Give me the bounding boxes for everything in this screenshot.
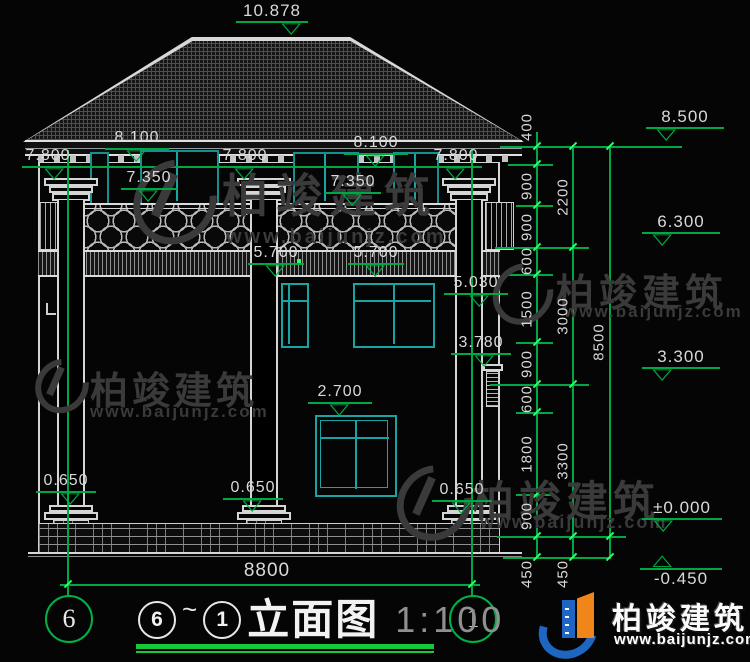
brand-url: www.baijunjz.com: [614, 631, 750, 648]
title-underline: [136, 644, 434, 649]
level-down-icon: ▽: [322, 155, 431, 166]
level-down-icon: ▽: [441, 355, 529, 366]
dim-label: 7.350: [121, 169, 177, 186]
column-shaft: [57, 200, 85, 505]
side-railing: [485, 202, 514, 250]
level-down-icon: ▽: [305, 194, 400, 205]
dim-label: 1800: [519, 435, 536, 472]
dim-label: 8.100: [105, 129, 169, 146]
level-down-icon: ▽: [286, 404, 395, 415]
dim-label: 2200: [555, 178, 572, 215]
title-circle-6: 6: [138, 601, 176, 639]
dim-label: 400: [519, 113, 536, 141]
level-down-icon: ▽: [202, 500, 304, 511]
column-base: [44, 512, 98, 520]
dim-label: 3.780: [451, 334, 511, 351]
watermark-url-text: www.baijunjz.com: [90, 402, 269, 422]
dim-label: 0.650: [432, 481, 492, 498]
brand-logo-icon: [536, 590, 612, 660]
wall-bracket: [46, 303, 56, 315]
ground-line: [28, 552, 522, 554]
dim-label: 2.700: [308, 383, 372, 400]
level-down-icon: ▽: [265, 23, 319, 34]
louver-vent: [486, 371, 499, 407]
level-down-icon: ▽: [566, 369, 750, 380]
dim-label: 600: [519, 385, 536, 413]
window-transom: [283, 300, 307, 302]
dim-label: 10.878: [236, 2, 308, 19]
dim-label: 5.030: [444, 274, 508, 291]
brand-building-blue: [562, 600, 575, 638]
level-down-icon: ▽: [201, 168, 289, 179]
dim-label: 900: [519, 350, 536, 378]
level-down-icon: ▽: [83, 150, 192, 161]
window-inner-frame: [320, 420, 388, 488]
ground-line-2: [28, 556, 522, 557]
roof-tile-hatch: [27, 40, 520, 140]
dim-line-bottom: [60, 584, 480, 586]
dim-label: ±0.000: [642, 499, 722, 516]
dim-label: 8.500: [646, 108, 724, 125]
dim-label: 1500: [519, 290, 536, 327]
axis-line-1: [471, 150, 473, 597]
dim-label: 900: [519, 172, 536, 200]
dim-label: -0.450: [640, 570, 722, 587]
drawing-scale: 1:100: [395, 599, 505, 641]
dim-label: 7.800: [22, 147, 74, 164]
axis-number: 6: [63, 604, 76, 634]
dim-label: 8800: [227, 560, 307, 582]
window-mullion: [355, 420, 357, 489]
dim-label: 8.100: [344, 134, 408, 151]
side-railing: [39, 202, 59, 250]
dim-label: 3000: [555, 297, 572, 334]
dim-label: 3300: [555, 442, 572, 479]
dim-label: 450: [519, 560, 536, 588]
dim-tick-line: [500, 146, 682, 148]
drawing-title: 立面图: [247, 597, 379, 643]
axis-bubble-6: 6: [45, 595, 93, 643]
window-mullion: [288, 285, 290, 344]
level-down-icon: ▽: [432, 295, 527, 306]
dim-label: 6.300: [642, 213, 720, 230]
dim-label: 900: [519, 213, 536, 241]
dim-label: 5.700: [248, 244, 304, 261]
dim-label: 600: [519, 247, 536, 275]
dim-label: 7.800: [219, 147, 271, 164]
elevation-drawing-canvas: 柏竣建筑 www.baijunjz.com 柏竣建筑 www.baijunjz.…: [0, 0, 750, 662]
dim-label: 450: [555, 560, 572, 588]
dim-label: 8500: [591, 323, 608, 360]
window-mullion: [393, 285, 395, 344]
dim-label: 7.800: [430, 147, 482, 164]
level-down-icon: ▽: [29, 493, 114, 504]
level-down-icon: ▽: [411, 502, 513, 513]
column-capital: [447, 186, 491, 193]
title-underline-thin: [136, 651, 434, 653]
level-down-icon: ▽: [101, 190, 196, 201]
tilde-symbol: ~: [182, 594, 197, 625]
title-circle-1: 1: [203, 601, 241, 639]
level-up-icon: △: [563, 555, 750, 566]
dim-tick-line: [495, 247, 589, 249]
dim-label: 5.700: [348, 244, 404, 261]
level-down-icon: ▽: [412, 168, 500, 179]
level-down-icon: ▽: [566, 234, 750, 245]
level-down-icon: ▽: [570, 129, 750, 140]
window: [281, 283, 309, 348]
drawing-title-block: 6 ~ 1 立面图 1:100: [138, 597, 505, 643]
dim-label: 0.650: [223, 479, 283, 496]
elevation-marker: 10.878 ▽: [236, 2, 308, 34]
brand-building-orange: [577, 592, 594, 638]
level-down-icon: ▽: [23, 168, 88, 179]
dim-label: 7.350: [325, 173, 381, 190]
level-down-icon: ▽: [565, 520, 750, 531]
dim-label: 900: [519, 502, 536, 530]
dim-label: 0.650: [36, 472, 96, 489]
dim-tick-line: [508, 164, 553, 166]
watermark-url-text: www.baijunjz.com: [564, 302, 743, 322]
watermark-logo-icon: [24, 348, 100, 424]
dim-label: 3.300: [642, 348, 720, 365]
window-transom: [320, 437, 389, 439]
column-capital: [49, 186, 93, 193]
level-down-icon: ▽: [328, 265, 423, 276]
level-down-icon: ▽: [228, 265, 323, 276]
